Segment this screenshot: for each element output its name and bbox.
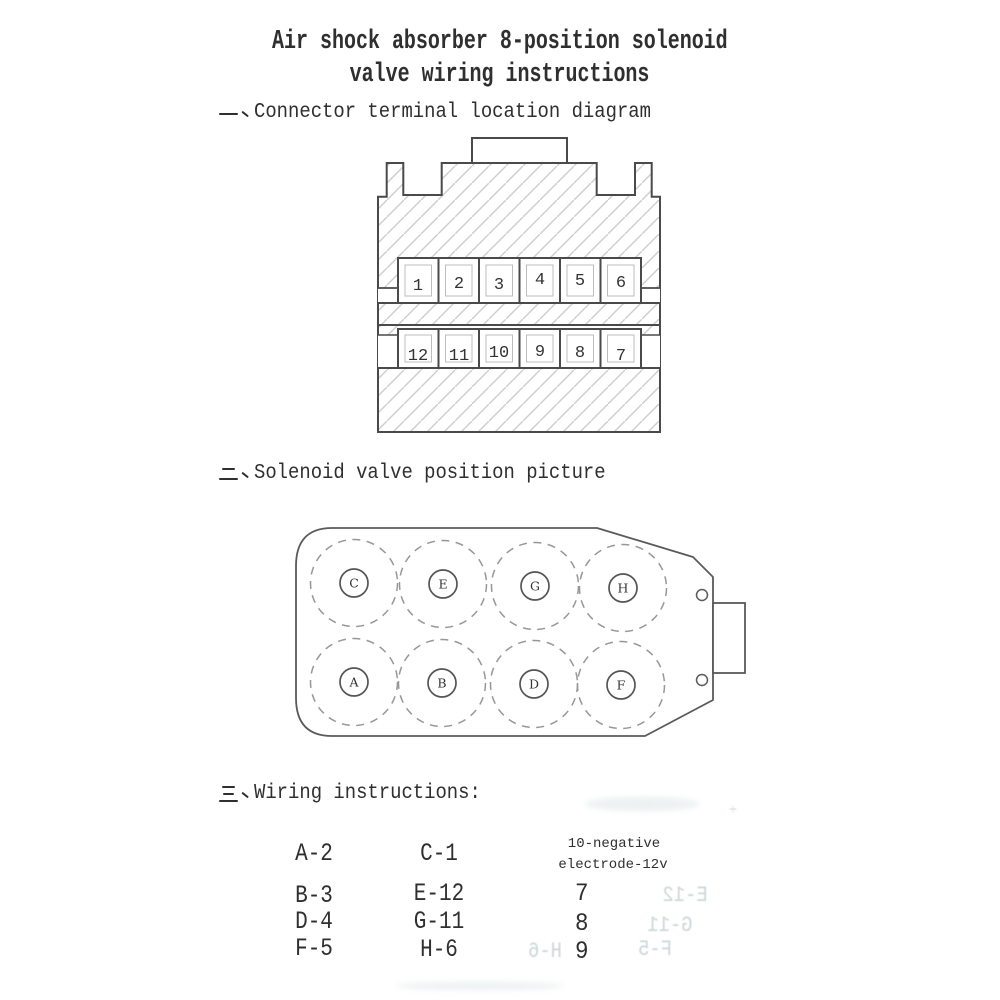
scan-smudge: [585, 797, 700, 811]
terminal-number: 8: [575, 344, 585, 363]
wiring-terminal-number: 9: [575, 939, 589, 965]
terminal-number: 1: [413, 277, 423, 296]
cjk-comma: [240, 782, 251, 804]
terminal-number: 12: [408, 347, 428, 366]
connector-top-tab: [472, 138, 567, 163]
terminal-number: 11: [449, 347, 469, 366]
terminal-cell-12: 12: [398, 329, 439, 368]
section2-heading: Solenoid valve position picture: [218, 462, 645, 485]
top-band-left-slot: [378, 288, 398, 303]
terminal-number: 3: [494, 276, 504, 295]
valve-port-label: H: [618, 581, 629, 596]
bottom-band-right-slot: [641, 335, 660, 368]
cjk-numeral-one: [218, 101, 240, 123]
ghost-text: ÷: [729, 800, 737, 822]
valve-diagram: C E G H A B D: [290, 518, 760, 748]
wiring-pair: F-5: [295, 936, 333, 962]
wiring-pair: H-6: [420, 937, 458, 963]
wiring-terminal-number: 7: [575, 881, 589, 907]
terminal-number: 9: [535, 343, 545, 362]
connector-diagram: 1 2 3 4 5 6 12: [370, 132, 670, 442]
terminal-cell-3: 3: [479, 258, 520, 303]
valve-connector-tab: [713, 603, 745, 673]
terminal-cell-8: 8: [560, 329, 601, 368]
ghost-text: E-12: [663, 885, 708, 907]
valve-port-label: G: [530, 579, 540, 594]
top-band-right-slot: [641, 288, 660, 303]
valve-port-label: B: [437, 676, 446, 691]
valve-port-label: C: [349, 576, 359, 591]
cjk-numeral-three: [218, 782, 240, 804]
terminal-cell-2: 2: [439, 258, 480, 303]
valve-body: [296, 528, 713, 736]
section2-heading-text: Solenoid valve position picture: [254, 462, 606, 485]
terminal-cell-6: 6: [601, 258, 642, 303]
section3-heading: Wiring instructions:: [218, 782, 506, 805]
ghost-text: H-6: [528, 941, 562, 963]
cjk-comma: [240, 462, 251, 484]
cjk-numeral-two: [218, 462, 240, 484]
terminal-cell-4: 4: [520, 258, 561, 303]
terminal-number: 5: [575, 272, 585, 291]
wiring-terminal-number: 8: [575, 911, 589, 937]
section1-heading: Connector terminal location diagram: [218, 101, 695, 124]
screw-hole-top: [697, 590, 708, 601]
wiring-note-line2: electrode-12v: [558, 857, 667, 873]
screw-hole-bottom: [697, 675, 708, 686]
valve-port-label: E: [438, 577, 447, 592]
terminal-cell-1: 1: [398, 258, 439, 303]
terminal-number: 10: [489, 344, 509, 363]
terminal-cell-10: 10: [479, 329, 520, 368]
terminal-cell-9: 9: [520, 329, 561, 368]
terminal-number: 2: [454, 275, 464, 294]
terminal-number: 4: [535, 271, 545, 290]
terminal-number: 7: [616, 347, 626, 366]
valve-port-label: F: [617, 678, 626, 693]
ghost-text: F-5: [638, 939, 672, 961]
terminal-cell-11: 11: [439, 329, 480, 368]
wiring-note-line1: 10-negative: [568, 836, 660, 852]
terminal-number: 6: [616, 274, 626, 293]
ghost-text: G-11: [648, 915, 693, 937]
cjk-comma: [240, 101, 251, 123]
wiring-pair: G-11: [414, 909, 464, 935]
scan-smudge: [395, 982, 565, 990]
wiring-pair: A-2: [295, 841, 333, 867]
document-page: Air shock absorber 8-position solenoid v…: [0, 0, 1000, 1000]
section1-heading-text: Connector terminal location diagram: [254, 101, 651, 124]
valve-port-label: A: [348, 675, 359, 690]
wiring-pair: B-3: [295, 883, 333, 909]
bottom-band-left-slot: [378, 335, 398, 368]
page-title-line2: valve wiring instructions: [0, 59, 1000, 92]
terminal-cell-5: 5: [560, 258, 601, 303]
wiring-pair: E-12: [414, 881, 464, 907]
wiring-pair: D-4: [295, 909, 333, 935]
wiring-pair: C-1: [420, 841, 458, 867]
page-title: Air shock absorber 8-position solenoid v…: [0, 26, 1000, 92]
terminal-cell-7: 7: [601, 329, 642, 368]
page-title-line1: Air shock absorber 8-position solenoid: [0, 26, 1000, 59]
valve-port-label: D: [529, 677, 539, 692]
section3-heading-text: Wiring instructions:: [254, 782, 481, 805]
